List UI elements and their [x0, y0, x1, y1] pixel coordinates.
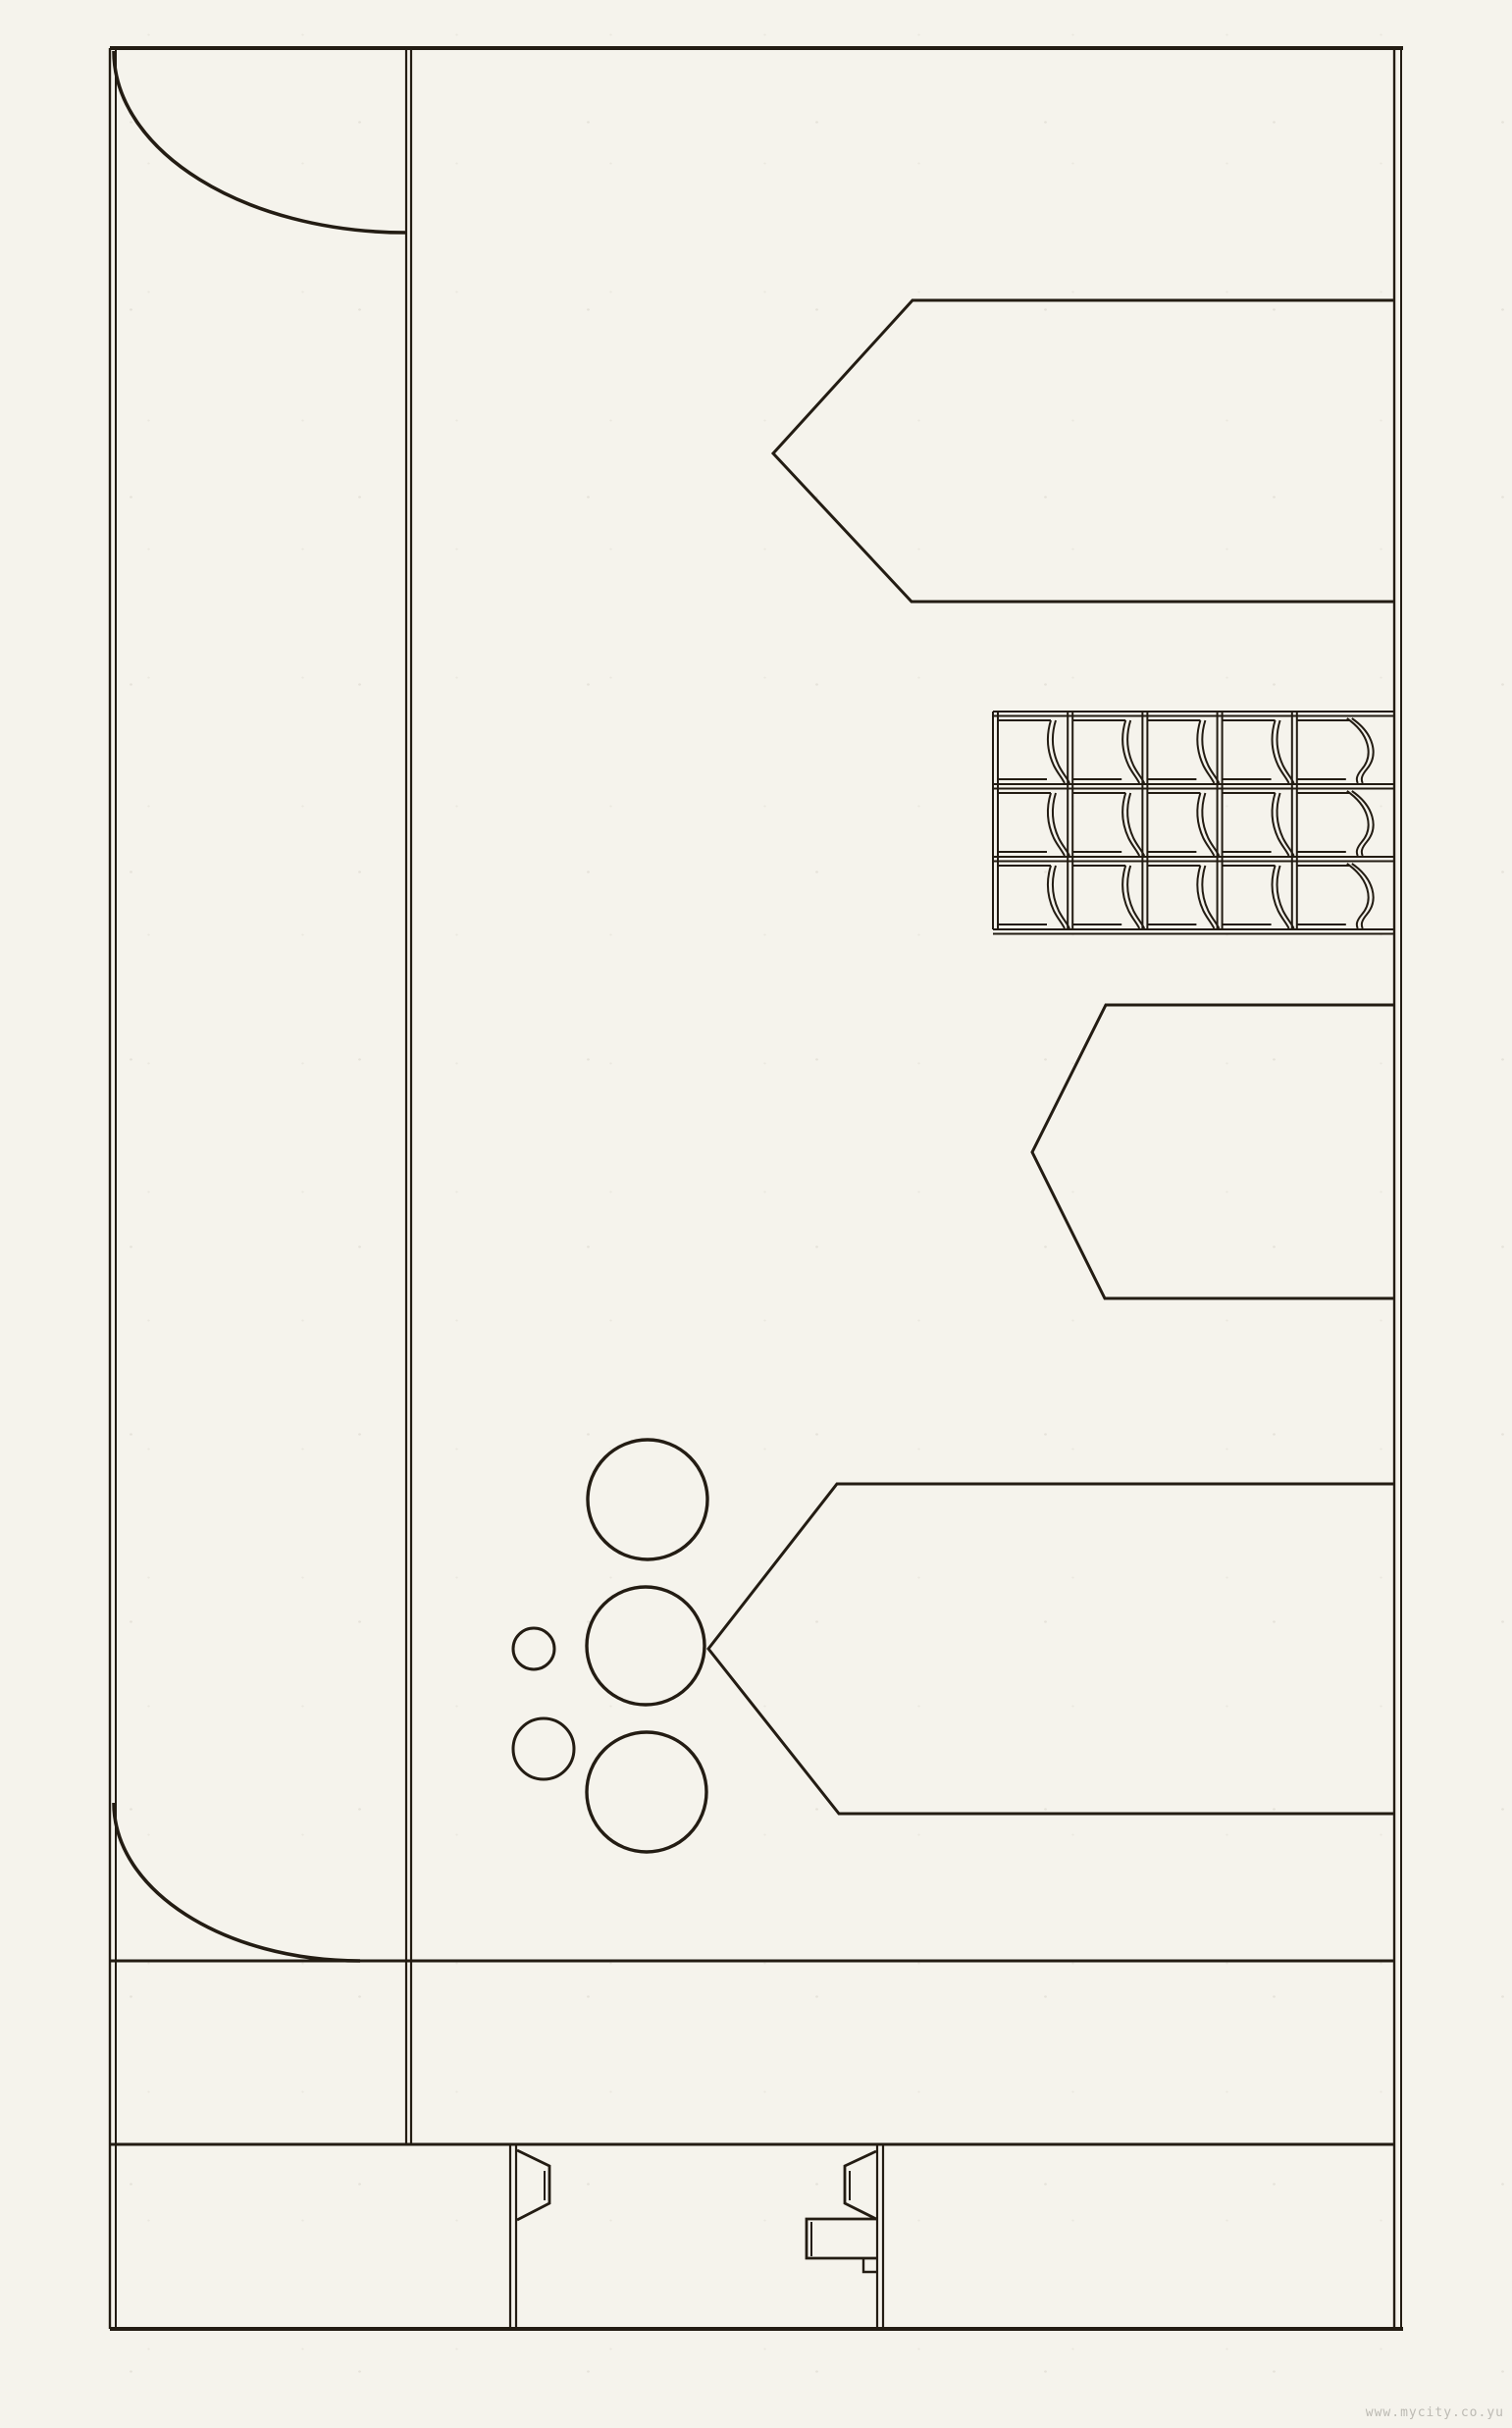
top-corner-curve: [114, 51, 406, 233]
arrow-pocket-top: [773, 300, 1394, 602]
stacked-units-grid-cell-r1c3-wave-a: [1272, 793, 1288, 856]
stacked-units-grid-cell-r2c4-endwave-a: [1347, 864, 1369, 928]
round-fixture-small-2: [513, 1718, 574, 1779]
stacked-units-grid-cell-r0c4-endwave-b: [1352, 718, 1374, 783]
stacked-units-grid-cell-r1c4-endwave-b: [1352, 791, 1374, 856]
round-fixture-large-1: [588, 1440, 707, 1559]
stacked-units-grid-cell-r2c3-wave-a: [1272, 866, 1288, 928]
stacked-units-grid-cell-r2c2-wave-a: [1197, 866, 1214, 928]
stacked-units-grid-cell-r0c1-wave-a: [1122, 720, 1139, 783]
stacked-units-grid-cell-r0c0-wave-a: [1048, 720, 1065, 783]
watermark-text: www.mycity.co.yu: [1366, 2405, 1504, 2420]
stacked-units-grid-cell-r2c0-wave-a: [1048, 866, 1065, 928]
stacked-units-grid-cell-r1c0-wave-a: [1048, 793, 1065, 856]
scanned-plan-page: www.mycity.co.yu: [0, 0, 1512, 2428]
hook2-box: [807, 2219, 876, 2258]
stacked-units-grid-cell-r0c3-wave-a: [1272, 720, 1288, 783]
stacked-units-grid-cell-r2c1-wave-a: [1122, 866, 1139, 928]
arrow-pocket-bottom: [708, 1484, 1394, 1814]
round-fixture-small-1: [513, 1628, 554, 1669]
round-fixture-large-2: [587, 1587, 704, 1705]
plan-drawing-canvas: [0, 0, 1512, 2428]
stacked-units-grid-cell-r0c2-wave-a: [1197, 720, 1214, 783]
stacked-units-grid-cell-r1c4-endwave-a: [1347, 791, 1369, 856]
bottom-corner-curve: [114, 1803, 360, 1961]
hook2-tab: [863, 2258, 877, 2272]
stacked-units-grid-cell-r0c4-endwave-a: [1347, 718, 1369, 783]
round-fixture-large-3: [587, 1732, 706, 1852]
stacked-units-grid-cell-r1c1-wave-a: [1122, 793, 1139, 856]
stacked-units-grid-cell-r1c2-wave-a: [1197, 793, 1214, 856]
stacked-units-grid-cell-r2c4-endwave-b: [1352, 864, 1374, 928]
arrow-pocket-middle: [1032, 1005, 1394, 1298]
